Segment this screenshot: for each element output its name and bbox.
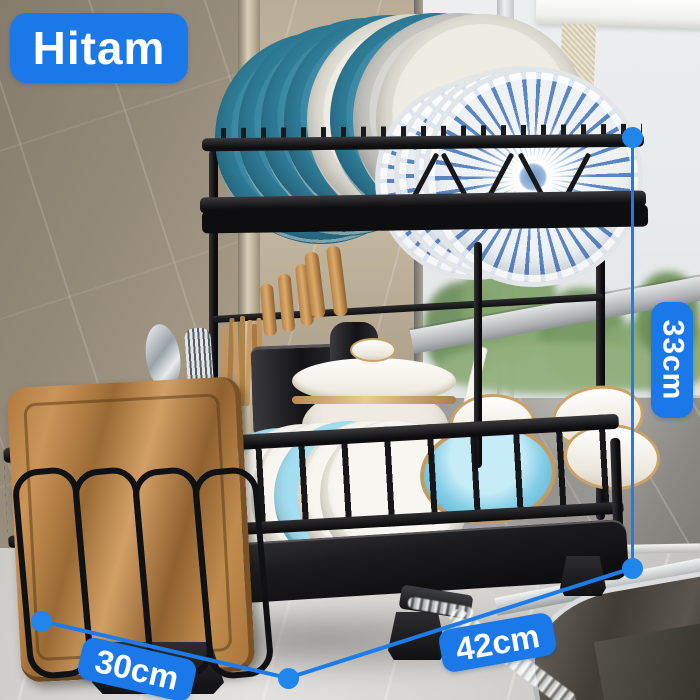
dimension-endpoint-dot-icon	[622, 558, 643, 579]
dimension-line-height	[631, 137, 634, 568]
product-photo: Hitam 33cm 42cm 30cm	[0, 0, 700, 700]
height-dimension-label: 33cm	[651, 302, 693, 418]
color-variant-label: Hitam	[10, 13, 188, 83]
height-dimension-text: 33cm	[655, 320, 689, 401]
dimension-endpoint-dot-icon	[278, 668, 299, 689]
dimension-endpoint-dot-icon	[622, 127, 643, 148]
dimension-endpoint-dot-icon	[31, 611, 52, 632]
roller-blind	[536, 0, 700, 28]
pot-lid-gold-rim	[292, 396, 456, 404]
pot-knob	[350, 338, 396, 362]
